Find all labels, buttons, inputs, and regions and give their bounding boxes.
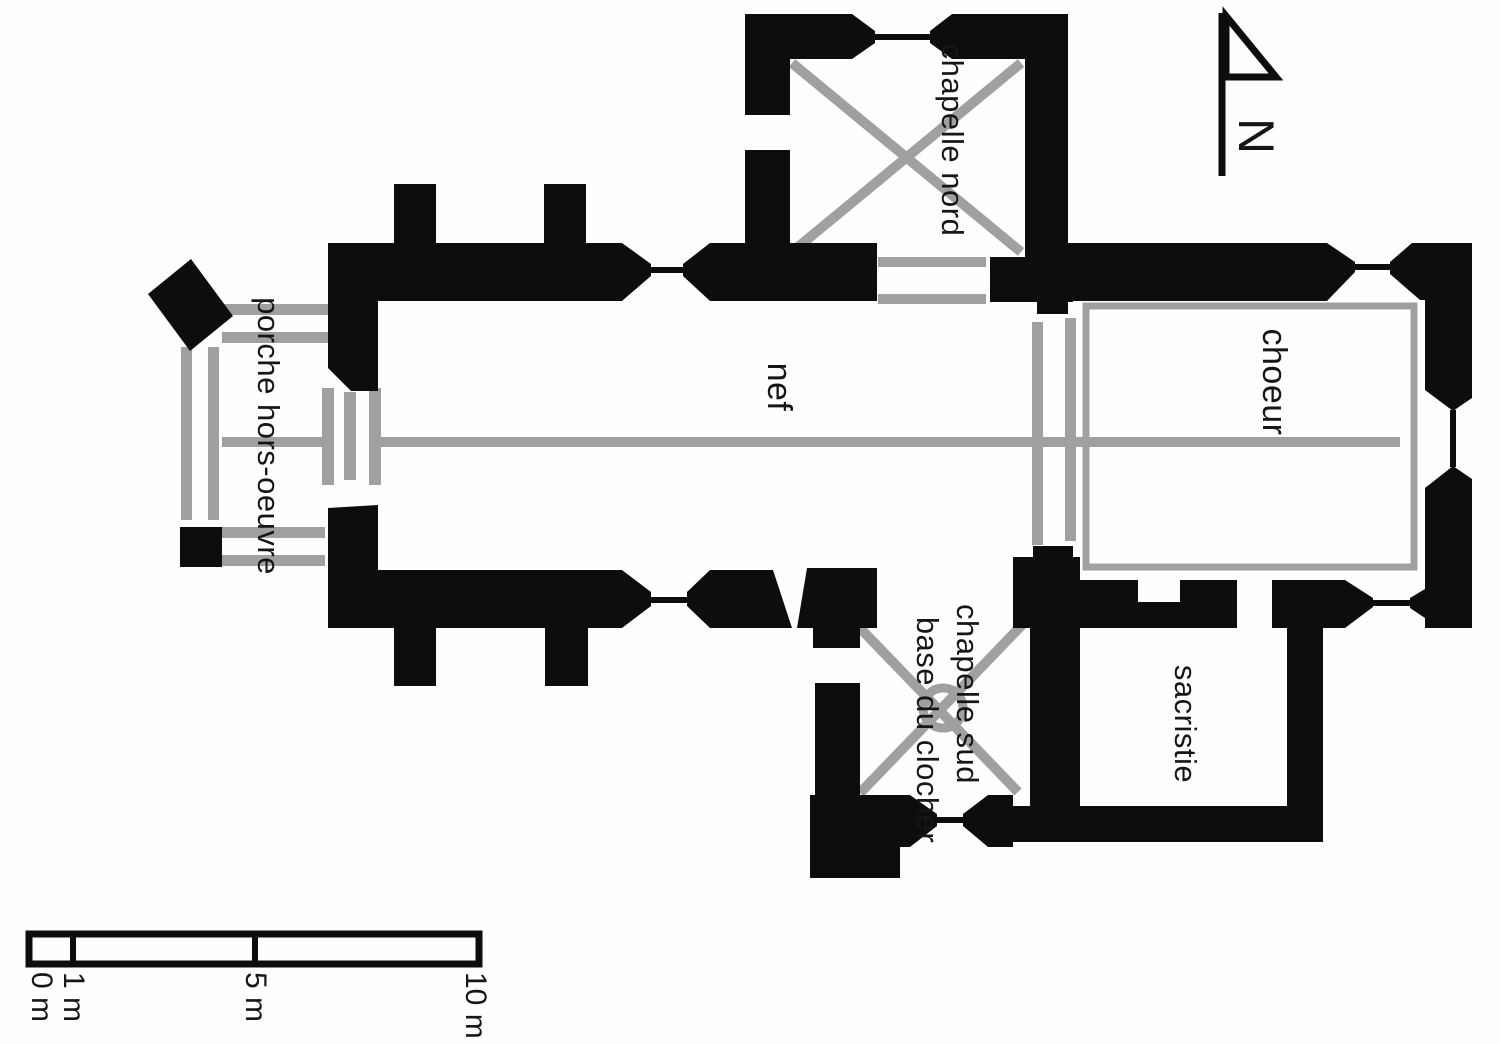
label-nef: nef <box>760 363 798 412</box>
label-base-du-clocher: base du clocher <box>910 617 945 843</box>
scale-bar: 0 m 1 m 5 m 10 m <box>25 934 492 1039</box>
vault-ribs-chapelle-nord <box>792 63 1021 252</box>
walls-chapelle-nord <box>745 14 1068 259</box>
chapelle-nord-opening-steps <box>878 257 986 304</box>
label-chapelle-nord: chapelle nord <box>935 44 970 237</box>
north-arrow-icon: N <box>1222 13 1284 176</box>
choir-step-outline <box>1086 306 1414 567</box>
floor-plan-drawing: chapelle nord nef choeur porche hors-oeu… <box>0 0 1500 1044</box>
scale-tick-10m: 10 m <box>459 972 492 1039</box>
label-porche-hors-oeuvre: porche hors-oeuvre <box>251 297 286 575</box>
west-door-jambs <box>322 388 381 485</box>
axis-line <box>222 437 1400 447</box>
walls-choeur <box>1013 243 1472 808</box>
north-arrow-label: N <box>1228 118 1284 154</box>
scale-tick-5m: 5 m <box>239 972 272 1022</box>
label-choeur: choeur <box>1255 329 1293 436</box>
label-sacristie: sacristie <box>1168 665 1203 783</box>
scale-tick-1m: 1 m <box>57 972 90 1022</box>
chancel-arch-responds <box>1032 318 1076 545</box>
scale-tick-0m: 0 m <box>25 972 58 1022</box>
label-chapelle-sud: chapelle sud <box>950 604 985 784</box>
church-floor-plan-scan: chapelle nord nef choeur porche hors-oeu… <box>0 0 1500 1044</box>
